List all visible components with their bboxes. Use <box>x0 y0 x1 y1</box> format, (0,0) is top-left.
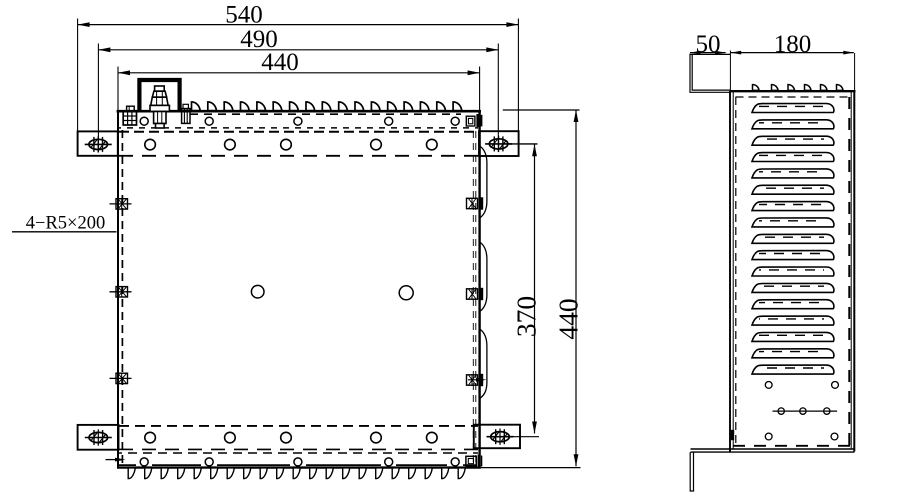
svg-text:440: 440 <box>553 298 584 339</box>
svg-text:180: 180 <box>774 31 812 58</box>
svg-text:4−R5×200: 4−R5×200 <box>26 214 105 234</box>
svg-text:540: 540 <box>225 2 263 29</box>
svg-text:440: 440 <box>261 49 299 76</box>
svg-text:370: 370 <box>511 296 542 337</box>
svg-text:50: 50 <box>696 31 721 58</box>
